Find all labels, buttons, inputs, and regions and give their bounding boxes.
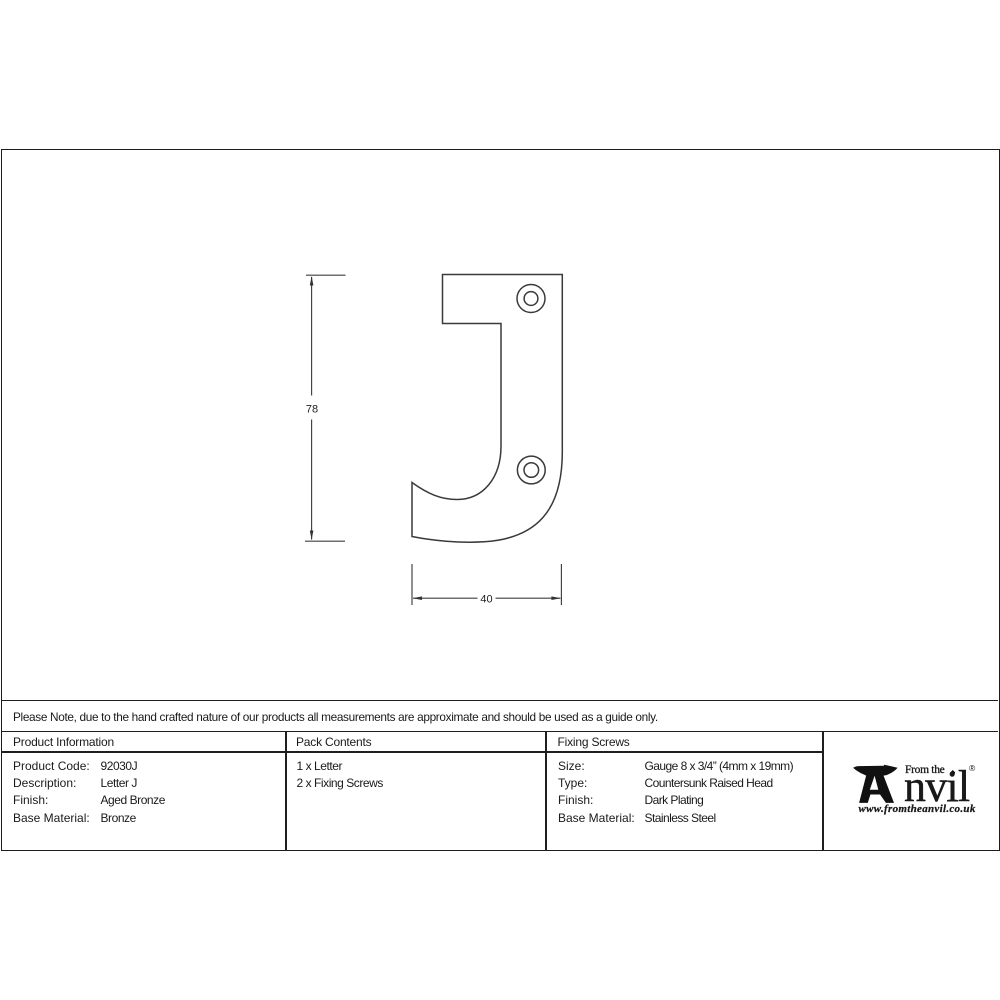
- svg-text:78: 78: [306, 404, 318, 416]
- svg-text:40: 40: [480, 594, 492, 606]
